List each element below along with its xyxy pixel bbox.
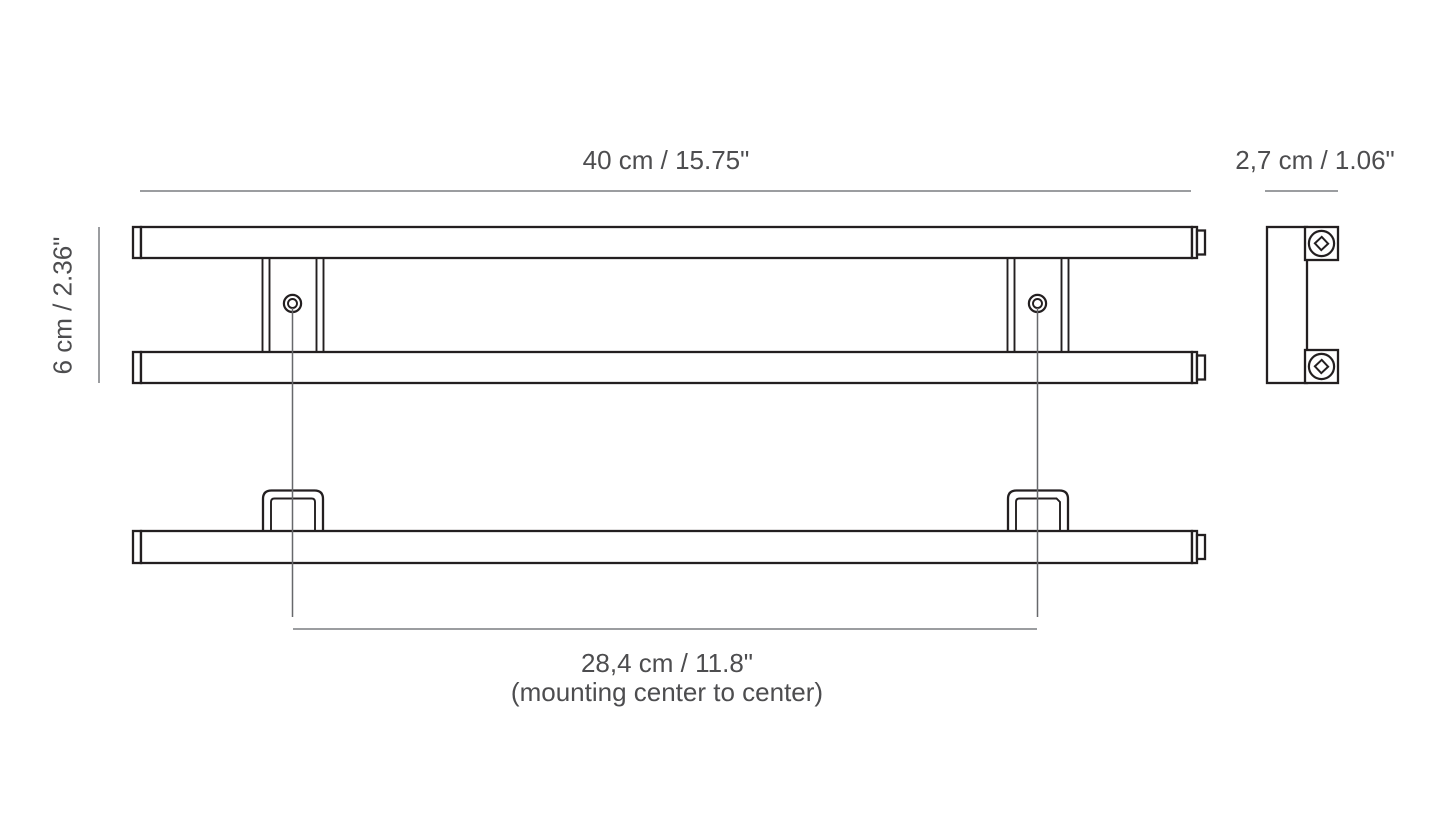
bottom-bar [133, 531, 1205, 563]
height-dimension-label: 6 cm / 2.36" [49, 204, 78, 408]
side-bottom-bar-end [1305, 350, 1338, 383]
bottom-view [133, 491, 1205, 564]
side-top-bar-end [1305, 227, 1338, 260]
front-view [133, 227, 1205, 383]
side-view [1267, 227, 1338, 383]
mounting-distance-label: 28,4 cm / 11.8" [141, 649, 1193, 678]
depth-dimension-label: 2,7 cm / 1.06" [1215, 146, 1415, 175]
diagram-canvas: 40 cm / 15.75" 2,7 cm / 1.06" 6 cm / 2.3… [0, 0, 1443, 822]
front-bottom-bar [133, 352, 1205, 383]
width-dimension-label: 40 cm / 15.75" [140, 146, 1192, 175]
side-wall-plate [1267, 227, 1307, 383]
front-top-bar [133, 227, 1205, 258]
mounting-note-label: (mounting center to center) [141, 678, 1193, 707]
